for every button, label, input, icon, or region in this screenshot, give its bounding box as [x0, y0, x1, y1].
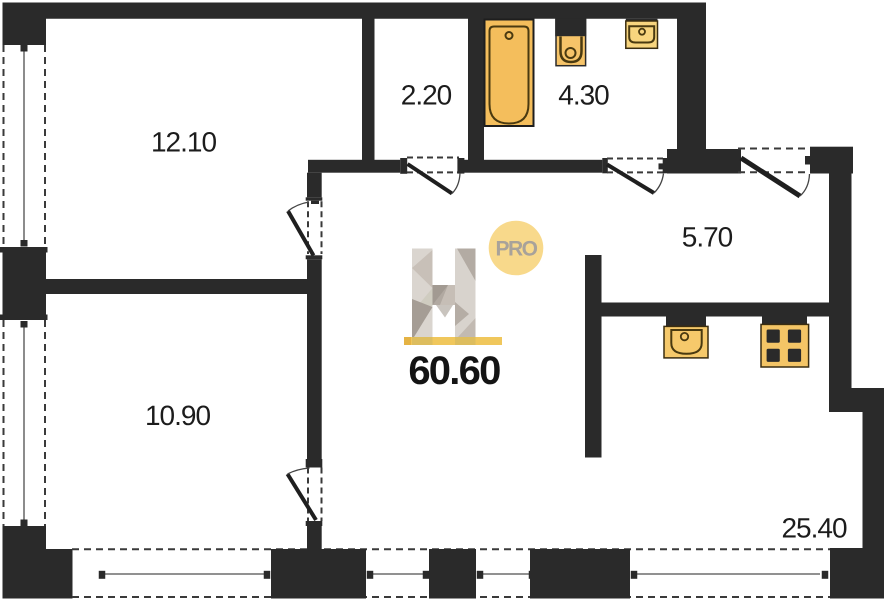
svg-text:60.60: 60.60	[408, 349, 500, 393]
svg-text:25.40: 25.40	[781, 513, 846, 544]
svg-text:PRO: PRO	[495, 238, 537, 261]
svg-text:10.90: 10.90	[145, 400, 210, 431]
svg-text:5.70: 5.70	[682, 222, 733, 253]
svg-text:4.30: 4.30	[558, 80, 609, 111]
svg-text:2.20: 2.20	[401, 80, 452, 111]
svg-text:12.10: 12.10	[151, 127, 216, 158]
